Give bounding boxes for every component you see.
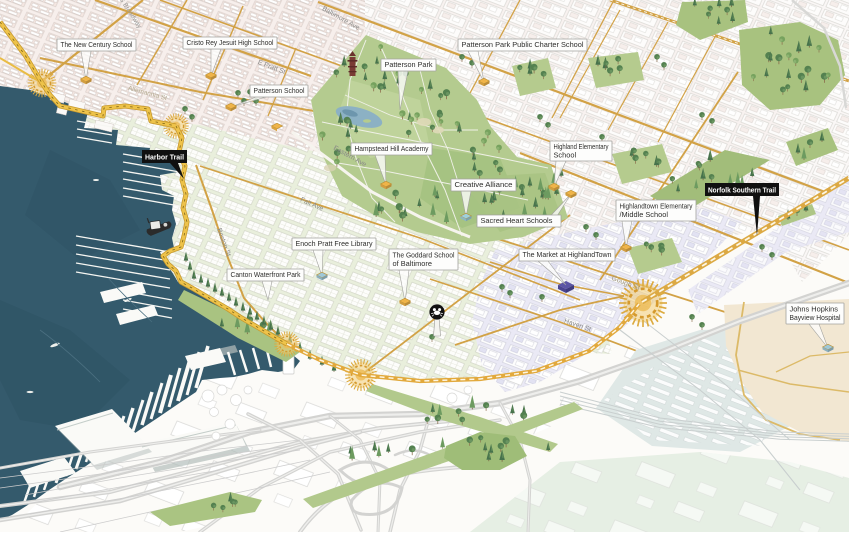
svg-text:The Market at HighlandTown: The Market at HighlandTown: [523, 250, 612, 259]
svg-text:Patterson School: Patterson School: [254, 86, 305, 95]
svg-text:Hampstead Hill Academy: Hampstead Hill Academy: [355, 144, 429, 153]
svg-text:Enoch Pratt Free Library: Enoch Pratt Free Library: [296, 239, 373, 248]
svg-text:of Baltimore: of Baltimore: [393, 259, 432, 268]
svg-text:Harbor Trail: Harbor Trail: [145, 153, 184, 162]
svg-text:Patterson Park Public Charter: Patterson Park Public Charter School: [462, 40, 584, 49]
svg-text:Patterson Park: Patterson Park: [385, 60, 433, 69]
svg-text:Sacred Heart Schools: Sacred Heart Schools: [481, 216, 553, 225]
svg-text:Creative Alliance: Creative Alliance: [455, 180, 513, 189]
svg-text:Norfolk Southern Trail: Norfolk Southern Trail: [708, 186, 776, 195]
svg-text:School: School: [554, 150, 577, 159]
svg-text:Cristo Rey Jesuit High School: Cristo Rey Jesuit High School: [187, 38, 274, 47]
svg-text:/Middle School: /Middle School: [620, 210, 669, 219]
svg-text:Canton Waterfront Park: Canton Waterfront Park: [231, 270, 301, 279]
svg-text:The New Century School: The New Century School: [61, 40, 133, 49]
svg-text:Bayview Hospital: Bayview Hospital: [790, 313, 841, 322]
